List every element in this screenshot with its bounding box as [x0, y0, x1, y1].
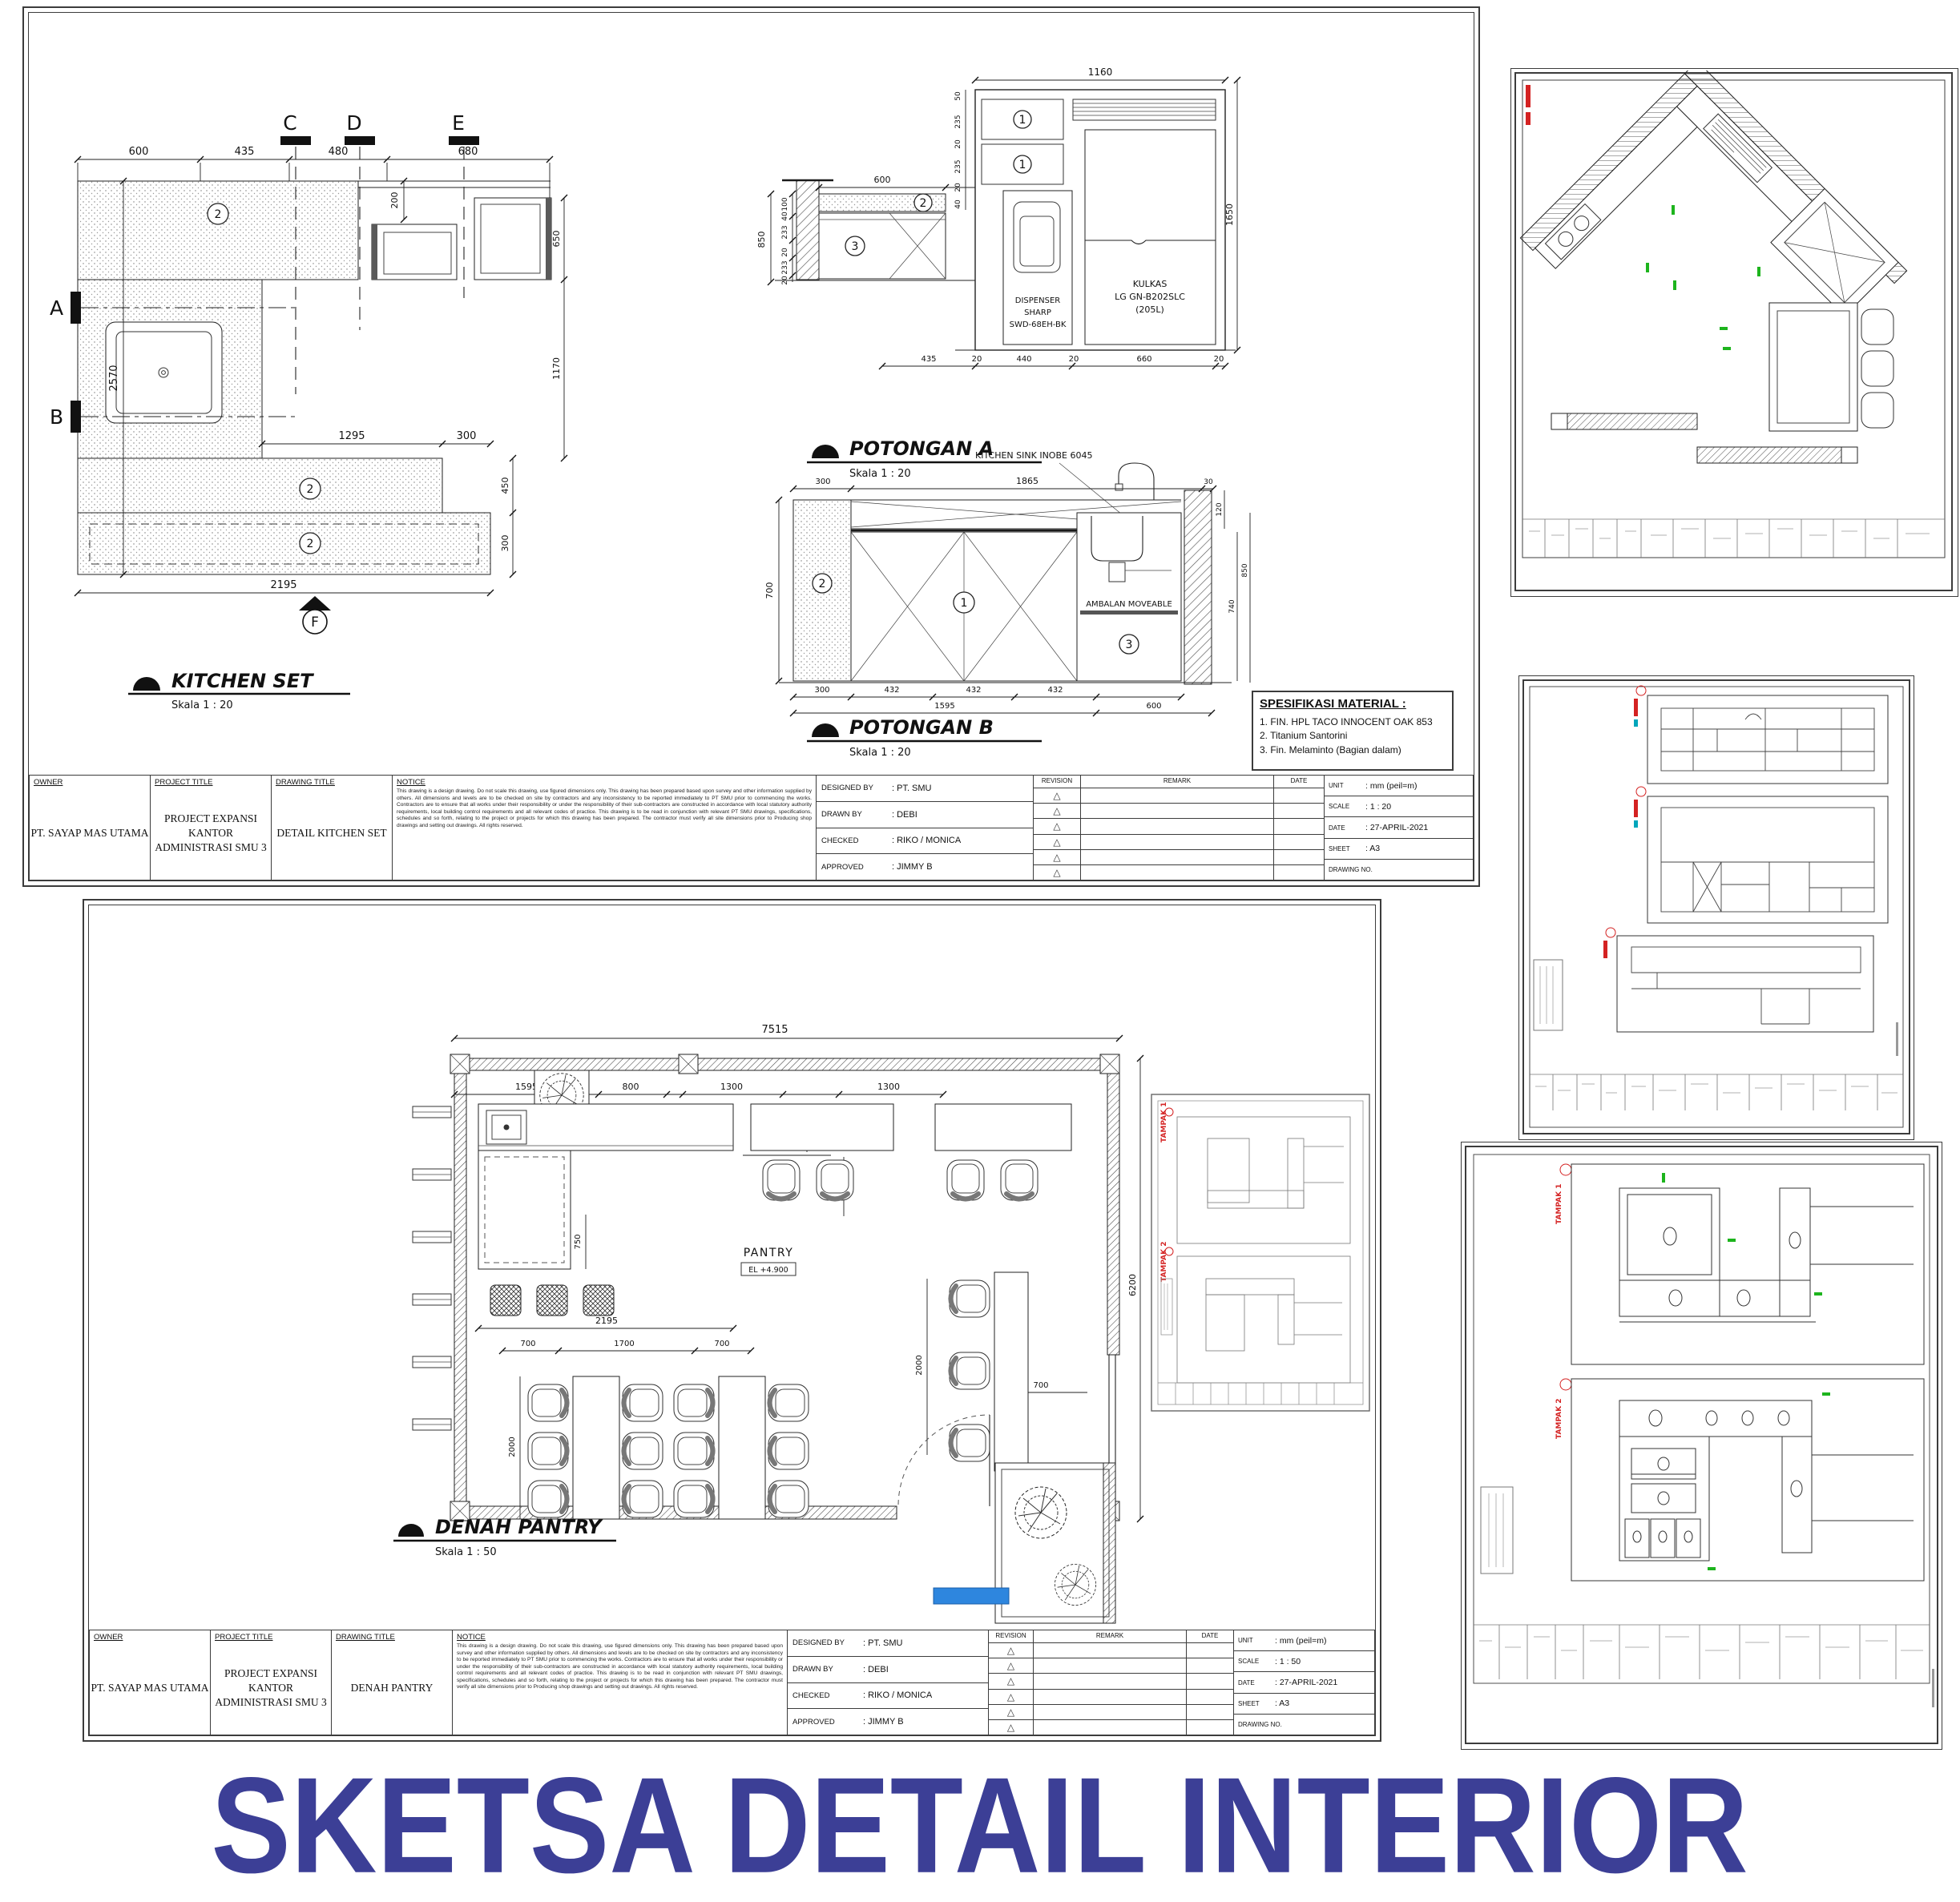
svg-text:1700: 1700 [614, 1340, 634, 1348]
marker-e: E [452, 111, 465, 135]
svg-text:2: 2 [920, 197, 927, 210]
marker-a: A [50, 296, 63, 320]
svg-text:Skala 1 : 20: Skala 1 : 20 [171, 699, 233, 711]
marker-c: C [283, 111, 296, 135]
svg-text:300: 300 [815, 478, 830, 486]
tampak-1-label: TAMPAK 1 [1555, 1184, 1563, 1224]
svg-text:3: 3 [1126, 639, 1133, 651]
svg-text:432: 432 [1047, 686, 1063, 695]
svg-text:Skala 1 : 50: Skala 1 : 50 [435, 1546, 497, 1558]
svg-text:1295: 1295 [338, 430, 365, 442]
approved-row: APPROVED : JIMMY B [817, 854, 1033, 880]
sheet-denah-pantry: 7515 1595 800 1300 1300 700 760 1051 117… [83, 899, 1381, 1742]
left-windows [413, 1106, 451, 1430]
svg-text:235: 235 [954, 159, 962, 173]
potongan-a: 850 100 40 233 20 233 20 2 3 600 435 [756, 66, 1240, 480]
potongan-b: KITCHEN SINK INOBE 6045 300 1865 30 2 70… [764, 450, 1250, 759]
svg-text:SHARP: SHARP [1024, 308, 1051, 317]
plan-upper-cabinets [358, 181, 551, 280]
svg-text:740: 740 [1228, 599, 1236, 613]
svg-text:SWD-68EH-BK: SWD-68EH-BK [1010, 320, 1067, 329]
svg-text:EL +4.900: EL +4.900 [748, 1266, 788, 1275]
sheet-row: SHEET : A3 [1325, 839, 1473, 860]
svg-text:20: 20 [972, 355, 982, 364]
checked-row: CHECKED : RIKO / MONICA [817, 828, 1033, 855]
sketsa-detail-interior-page: C D E A B F [0, 0, 1960, 1902]
svg-text:40: 40 [954, 199, 962, 209]
svg-text:1: 1 [1019, 159, 1026, 171]
svg-text:1160: 1160 [1088, 66, 1113, 78]
section-sink-cabinet: AMBALAN MOVEABLE 3 [1077, 463, 1181, 681]
svg-text:480: 480 [329, 146, 349, 158]
green-annotations [1646, 205, 1760, 350]
svg-text:20: 20 [781, 248, 789, 257]
spec-material-box: SPESIFIKASI MATERIAL : 1. FIN. HPL TACO … [1252, 691, 1454, 771]
project-line1: PROJECT EXPANSI [164, 812, 257, 826]
revision-triangle-icon: △ [1034, 849, 1080, 864]
svg-text:Skala 1 : 20: Skala 1 : 20 [849, 468, 911, 480]
revision-triangle-icon: △ [1034, 818, 1080, 833]
potongan-b-title: POTONGAN B Skala 1 : 20 [807, 716, 1042, 759]
svg-text:1650: 1650 [1224, 203, 1235, 226]
svg-text:1865: 1865 [1016, 476, 1038, 486]
svg-text:450: 450 [500, 478, 510, 494]
svg-text:TAMPAK 1: TAMPAK 1 [1160, 1102, 1168, 1142]
long-tables [528, 1376, 809, 1519]
svg-text:1595: 1595 [934, 702, 954, 711]
denah-pantry-drawing: 7515 1595 800 1300 1300 700 760 1051 117… [86, 902, 1378, 1631]
spec-item: 3. Fin. Melaminto (Bagian dalam) [1260, 743, 1446, 757]
svg-text:300: 300 [500, 535, 510, 552]
svg-text:650: 650 [551, 231, 562, 248]
revision-triangle-icon: △ [989, 1642, 1033, 1658]
sheet-tampak: TAMPAK 1 TAMPA [1461, 1142, 1942, 1750]
tb-revision-col: REVISION △ △ △ △ △ △ [1034, 776, 1081, 880]
tampak-drawing: TAMPAK 1 TAMPA [1463, 1144, 1940, 1747]
denah-pantry-title: DENAH PANTRY Skala 1 : 50 [393, 1516, 616, 1558]
svg-text:700: 700 [1033, 1381, 1048, 1390]
revision-triangle-icon: △ [1034, 803, 1080, 818]
tb-project-col: PROJECT TITLE PROJECT EXPANSI KANTOR ADM… [211, 1630, 332, 1735]
revision-triangle-icon: △ [989, 1719, 1033, 1735]
revision-triangle-icon: △ [989, 1689, 1033, 1704]
svg-text:30: 30 [1204, 478, 1213, 486]
tb-signatures-col: DESIGNED BY : PT. SMU DRAWN BY : DEBI CH… [817, 776, 1034, 880]
north-tables [751, 1104, 1071, 1200]
shelf-label: AMBALAN MOVEABLE [1086, 600, 1172, 609]
owner-label: OWNER [30, 776, 150, 787]
plot-stamp-mark [1896, 1022, 1898, 1056]
svg-text:700: 700 [520, 1340, 535, 1348]
svg-text:1170: 1170 [551, 357, 562, 380]
svg-text:2: 2 [819, 578, 826, 590]
sheet-elevations [1518, 675, 1914, 1140]
tampak-2-box: TAMPAK 2 [1555, 1379, 1924, 1581]
mini-titleblock-strip [1530, 1074, 1903, 1110]
svg-text:20: 20 [1214, 355, 1224, 364]
svg-text:POTONGAN A: POTONGAN A [849, 437, 994, 460]
drawn-by-row: DRAWN BY : DEBI [817, 802, 1033, 828]
svg-text:200: 200 [389, 192, 400, 209]
svg-text:432: 432 [966, 686, 981, 695]
svg-text:850: 850 [756, 232, 767, 248]
tb-drawing-col: DRAWING TITLE DENAH PANTRY [332, 1630, 453, 1735]
svg-text:TAMPAK 2: TAMPAK 2 [1160, 1242, 1168, 1282]
svg-text:440: 440 [1016, 355, 1031, 364]
svg-text:DISPENSER: DISPENSER [1015, 296, 1060, 305]
svg-text:2195: 2195 [270, 579, 296, 591]
revision-triangle-icon: △ [1034, 864, 1080, 880]
svg-text:100: 100 [781, 197, 789, 211]
red-stamp-mark [1526, 112, 1530, 125]
svg-text:DENAH PANTRY: DENAH PANTRY [435, 1516, 603, 1538]
mini-spec-box [1534, 960, 1563, 1030]
project-line2: KANTOR ADMINISTRASI SMU 3 [151, 826, 271, 855]
plot-stamp-mark [1932, 1669, 1934, 1707]
svg-text:300: 300 [457, 430, 477, 442]
marker-f: F [299, 596, 331, 634]
tampak-1-box: TAMPAK 1 [1555, 1164, 1924, 1364]
svg-text:600: 600 [129, 146, 149, 158]
tb-project-col: PROJECT TITLE PROJECT EXPANSI KANTOR ADM… [151, 776, 272, 880]
right-chairs [950, 1272, 1028, 1471]
tb-revision-col: REVISION △ △ △ △ △ △ [989, 1630, 1034, 1735]
tb-date-col: DATE [1274, 776, 1325, 880]
svg-text:235: 235 [954, 115, 962, 128]
svg-text:(205L): (205L) [1135, 304, 1164, 315]
titleblock-kitchen-set: OWNER PT. SAYAP MAS UTAMA PROJECT TITLE … [29, 775, 1474, 880]
blue-mat [934, 1588, 1009, 1604]
dispenser: DISPENSER SHARP SWD-68EH-BK [1003, 191, 1072, 345]
elevation-box-1 [1634, 686, 1888, 784]
project-title-label: PROJECT TITLE [151, 776, 271, 787]
room-label: PANTRY EL +4.900 [741, 1247, 796, 1275]
svg-text:KULKAS: KULKAS [1133, 279, 1168, 289]
svg-text:20: 20 [954, 183, 962, 192]
svg-text:435: 435 [921, 355, 936, 364]
tb-owner-col: OWNER PT. SAYAP MAS UTAMA [90, 1630, 211, 1735]
notice-text: This drawing is a design drawing. Do not… [393, 787, 816, 831]
date-row: DATE : 27-APRIL-2021 [1325, 817, 1473, 838]
svg-text:2195: 2195 [595, 1316, 618, 1326]
revision-triangle-icon: △ [1034, 834, 1080, 849]
inset-tampak-sheet: TAMPAK 1 TAMPAK 2 [1151, 1094, 1369, 1411]
svg-text:PANTRY: PANTRY [744, 1247, 794, 1259]
svg-text:KITCHEN SET: KITCHEN SET [171, 670, 314, 692]
svg-text:40: 40 [781, 212, 789, 221]
spec-title: SPESIFIKASI MATERIAL : [1260, 697, 1446, 711]
notice-label: NOTICE [393, 776, 816, 787]
drawing-title-value: DETAIL KITCHEN SET [272, 787, 392, 880]
tb-drawing-col: DRAWING TITLE DETAIL KITCHEN SET [272, 776, 393, 880]
tb-info-col: UNIT: mm (peil=m) SCALE: 1 : 50 DATE: 27… [1234, 1630, 1374, 1735]
svg-text:660: 660 [1136, 355, 1151, 364]
red-stamp-mark [1526, 85, 1530, 107]
svg-text:680: 680 [458, 146, 478, 158]
titleblock-denah-pantry: OWNER PT. SAYAP MAS UTAMA PROJECT TITLE … [89, 1630, 1375, 1735]
marker-d: D [346, 111, 361, 135]
marker-b: B [50, 405, 63, 429]
svg-text:700: 700 [764, 582, 775, 599]
drawing-no-row: DRAWING NO. [1325, 860, 1473, 880]
svg-text:435: 435 [235, 146, 255, 158]
elevation-box-3 [1603, 928, 1873, 1032]
svg-text:600: 600 [1146, 702, 1161, 711]
scale-row: SCALE : 1 : 20 [1325, 796, 1473, 817]
revision-triangle-icon: △ [989, 1673, 1033, 1688]
unit-row: UNIT : mm (peil=m) [1325, 776, 1473, 796]
svg-text:120: 120 [1216, 502, 1224, 516]
kitchen-set-title: KITCHEN SET Skala 1 : 20 [128, 670, 350, 711]
kitchen-set-drawings: C D E A B F [26, 10, 1477, 777]
svg-text:7515: 7515 [761, 1024, 788, 1036]
elevations-drawing [1521, 678, 1912, 1138]
svg-text:2: 2 [307, 538, 314, 550]
svg-text:2000: 2000 [915, 1355, 924, 1375]
svg-text:850: 850 [1241, 563, 1249, 577]
tampak-2-label: TAMPAK 2 [1555, 1399, 1563, 1439]
elevation-box-2 [1634, 787, 1888, 923]
owner-value: PT. SAYAP MAS UTAMA [30, 787, 150, 880]
svg-text:Skala 1 : 20: Skala 1 : 20 [849, 747, 911, 759]
svg-text:1: 1 [1019, 114, 1026, 127]
spec-item: 2. Titanium Santorini [1260, 729, 1446, 743]
revision-triangle-icon: △ [1034, 788, 1080, 803]
svg-text:LG GN-B202SLC: LG GN-B202SLC [1115, 292, 1185, 302]
svg-text:6200: 6200 [1127, 1274, 1138, 1296]
mini-spec-box [1481, 1487, 1513, 1574]
page-title-text: SKETSA DETAIL INTERIOR [212, 1747, 1748, 1902]
svg-text:F: F [311, 615, 319, 631]
svg-text:800: 800 [623, 1082, 639, 1092]
sheet-rotated-plan [1510, 68, 1958, 597]
svg-text:300: 300 [814, 686, 829, 695]
tb-notice-col: NOTICE This drawing is a design drawing.… [453, 1630, 788, 1735]
tb-remark-col: REMARK [1081, 776, 1274, 880]
tb-info-col: UNIT : mm (peil=m) SCALE : 1 : 20 DATE :… [1325, 776, 1473, 880]
svg-text:3: 3 [852, 240, 859, 253]
svg-text:POTONGAN B: POTONGAN B [849, 716, 994, 739]
tb-owner-col: OWNER PT. SAYAP MAS UTAMA [30, 776, 151, 880]
tb-signatures-col: DESIGNED BY: PT. SMU DRAWN BY: DEBI CHEC… [788, 1630, 989, 1735]
designed-by-row: DESIGNED BY : PT. SMU [817, 776, 1033, 802]
svg-text:750: 750 [574, 1234, 583, 1249]
svg-text:2: 2 [307, 483, 314, 496]
tb-notice-col: NOTICE This drawing is a design drawing.… [393, 776, 817, 880]
revision-triangle-icon: △ [989, 1704, 1033, 1719]
mini-titleblock-strip [1474, 1625, 1930, 1679]
island-counter [478, 1104, 733, 1316]
svg-text:700: 700 [714, 1340, 729, 1348]
svg-text:2: 2 [215, 208, 222, 221]
rotated-plan-drawing [1513, 71, 1956, 594]
svg-text:233: 233 [781, 260, 789, 274]
svg-text:233: 233 [781, 225, 789, 239]
svg-text:2000: 2000 [508, 1437, 517, 1457]
svg-text:20: 20 [1069, 355, 1079, 364]
iso-table-chairs [1769, 303, 1893, 431]
drawing-title-label: DRAWING TITLE [272, 776, 392, 787]
project-title-value: PROJECT EXPANSI KANTOR ADMINISTRASI SMU … [151, 787, 271, 880]
sheet-detail-kitchen-set: C D E A B F [22, 6, 1480, 887]
kulkas: KULKAS LG GN-B202SLC (205L) [1085, 130, 1216, 345]
svg-text:1: 1 [961, 597, 968, 610]
svg-text:1300: 1300 [720, 1082, 743, 1092]
sink-label: KITCHEN SINK INOBE 6045 [975, 450, 1092, 461]
revision-triangle-icon: △ [989, 1658, 1033, 1673]
svg-text:432: 432 [884, 686, 899, 695]
svg-text:2570: 2570 [108, 365, 120, 391]
svg-text:1300: 1300 [877, 1082, 900, 1092]
mini-titleblock-strip [1522, 519, 1945, 558]
svg-text:50: 50 [954, 91, 962, 101]
svg-text:600: 600 [874, 175, 891, 185]
tb-date-col: DATE [1187, 1630, 1234, 1735]
spec-item: 1. FIN. HPL TACO INNOCENT OAK 853 [1260, 715, 1446, 729]
svg-text:20: 20 [954, 139, 962, 149]
kitchen-set-plan: C D E A B F [50, 111, 567, 711]
tb-remark-col: REMARK [1034, 1630, 1187, 1735]
page-title: SKETSA DETAIL INTERIOR [0, 1751, 1960, 1900]
